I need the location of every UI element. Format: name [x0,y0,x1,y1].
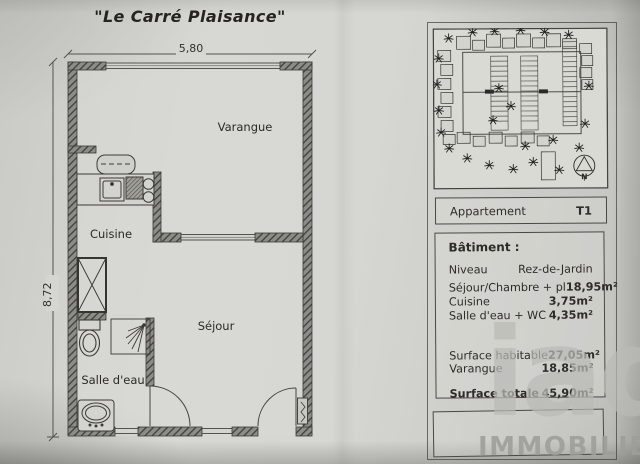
north-label: N [581,172,587,181]
dimension-height-label: 8,72 [41,283,54,308]
room-label-salle-deau: Salle d'eau [81,373,144,387]
surface-value: 27,05m² [548,348,600,361]
building-box: Bâtiment : Niveau Rez-de-Jardin Séjour/C… [434,231,605,398]
building-title: Bâtiment : [448,240,519,254]
area-label: Salle d'eau + WC [449,309,546,323]
surface-row: Varangue 18,85m² [449,361,593,375]
area-row: Séjour/Chambre + pl 18,95m² [449,280,593,294]
surface-label: Surface habitable [449,349,548,363]
room-label-sejour: Séjour [198,319,235,333]
niveau-value: Rez-de-Jardin [518,262,593,276]
surface-label: Varangue [449,362,502,375]
surface-row: Surface habitable 27,05m² [449,348,593,362]
area-value: 18,95m² [566,280,618,293]
area-label: Cuisine [449,295,490,308]
area-label: Séjour/Chambre + pl [449,281,566,295]
area-value: 3,75m² [549,294,593,307]
stove-icon [126,177,143,199]
room-label-cuisine: Cuisine [90,227,132,241]
niveau-label: Niveau [449,263,488,276]
room-label-varangue: Varangue [218,120,273,134]
floor-plan: 5,80 8,72 [0,0,420,464]
total-label: Surface totale [450,387,540,401]
site-plan: N [433,28,609,190]
area-row: Salle d'eau + WC 4,35m² [449,308,593,322]
surface-value: 18,85m² [541,361,593,374]
total-row: Surface totale 45,90m² [450,386,594,400]
floorplan-photo: "Le Carré Plaisance" 5,80 8,72 [0,0,640,464]
area-row: Cuisine 3,75m² [449,294,593,308]
dimension-width-label: 5,80 [179,42,204,55]
washbasin-icon [78,400,114,431]
electrical-panel-icon [298,398,308,424]
apartment-label: Appartement [450,203,526,217]
niveau-row: Niveau Rez-de-Jardin [449,262,593,276]
apartment-type: T1 [576,203,592,217]
total-value: 45,90m² [542,386,594,399]
area-value: 4,35m² [549,308,593,321]
empty-box [433,409,605,458]
apartment-box: Appartement T1 [435,197,607,225]
